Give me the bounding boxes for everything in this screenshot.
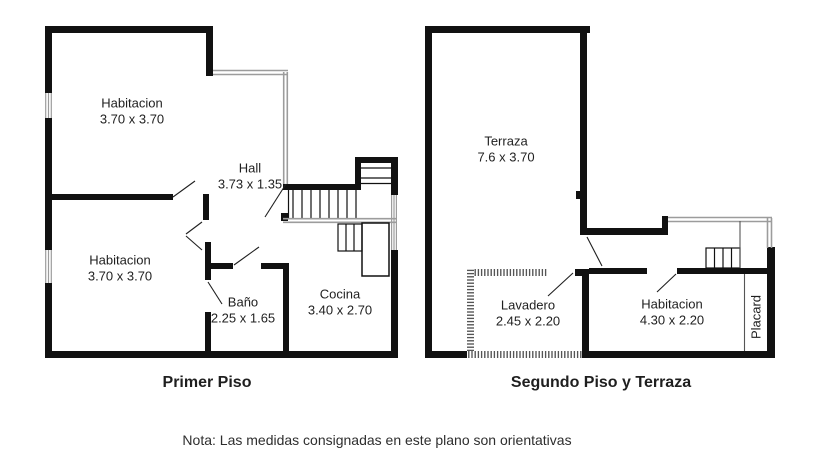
- room-name: Habitacion: [640, 297, 704, 313]
- plan-title-primer-piso: Primer Piso: [163, 374, 252, 392]
- room-label-habitacion-3: Habitacion 4.30 x 2.20: [640, 297, 704, 328]
- staircase-upper-flight: [357, 168, 391, 184]
- room-name: Habitacion: [88, 253, 152, 269]
- segundo-piso-plan: [425, 26, 775, 358]
- room-dims: 3.70 x 3.70: [88, 268, 152, 284]
- window-left-upper: [46, 93, 52, 118]
- room-label-habitacion-2: Habitacion 3.70 x 3.70: [88, 253, 152, 284]
- floorplan-sheet: Habitacion 3.70 x 3.70 Hall 3.73 x 1.35 …: [0, 0, 819, 460]
- room-dims: 3.40 x 2.70: [308, 302, 372, 318]
- room-label-lavadero: Lavadero 2.45 x 2.20: [496, 298, 560, 329]
- room-label-hall: Hall 3.73 x 1.35: [218, 161, 282, 192]
- room-dims: 2.45 x 2.20: [496, 313, 560, 329]
- room-name: Habitacion: [100, 96, 164, 112]
- room-dims: 3.70 x 3.70: [100, 111, 164, 127]
- room-name: Placard: [748, 295, 764, 339]
- floorplan-canvas: [0, 0, 819, 460]
- room-name: Cocina: [308, 287, 372, 303]
- room-label-terraza: Terraza 7.6 x 3.70: [477, 134, 534, 165]
- stair-landing-line: [283, 219, 397, 223]
- room-label-bano: Baño 2.25 x 1.65: [211, 295, 275, 326]
- room-dims: 4.30 x 2.20: [640, 312, 704, 328]
- room-dims: 2.25 x 1.65: [211, 310, 275, 326]
- room-name: Terraza: [477, 134, 534, 150]
- staircase: [706, 221, 740, 268]
- door-swings: [173, 181, 286, 304]
- room-dims: 3.73 x 1.35: [218, 176, 282, 192]
- room-name: Hall: [218, 161, 282, 177]
- terrace-railing: [668, 218, 772, 249]
- room-dims: 7.6 x 3.70: [477, 149, 534, 165]
- room-label-placard: Placard: [748, 295, 764, 339]
- plan-note: Nota: Las medidas consignadas en este pl…: [182, 432, 571, 448]
- door-swings: [548, 237, 676, 296]
- room-label-habitacion-1: Habitacion 3.70 x 3.70: [100, 96, 164, 127]
- room-name: Baño: [211, 295, 275, 311]
- window-left-lower: [46, 250, 52, 283]
- staircase-lower-flight: [338, 224, 362, 251]
- staircase-main-flight: [289, 190, 357, 218]
- stair-landing: [362, 223, 389, 276]
- room-name: Lavadero: [496, 298, 560, 314]
- exterior-walls: [425, 26, 775, 358]
- room-label-cocina: Cocina 3.40 x 2.70: [308, 287, 372, 318]
- plan-title-segundo-piso: Segundo Piso y Terraza: [511, 374, 691, 392]
